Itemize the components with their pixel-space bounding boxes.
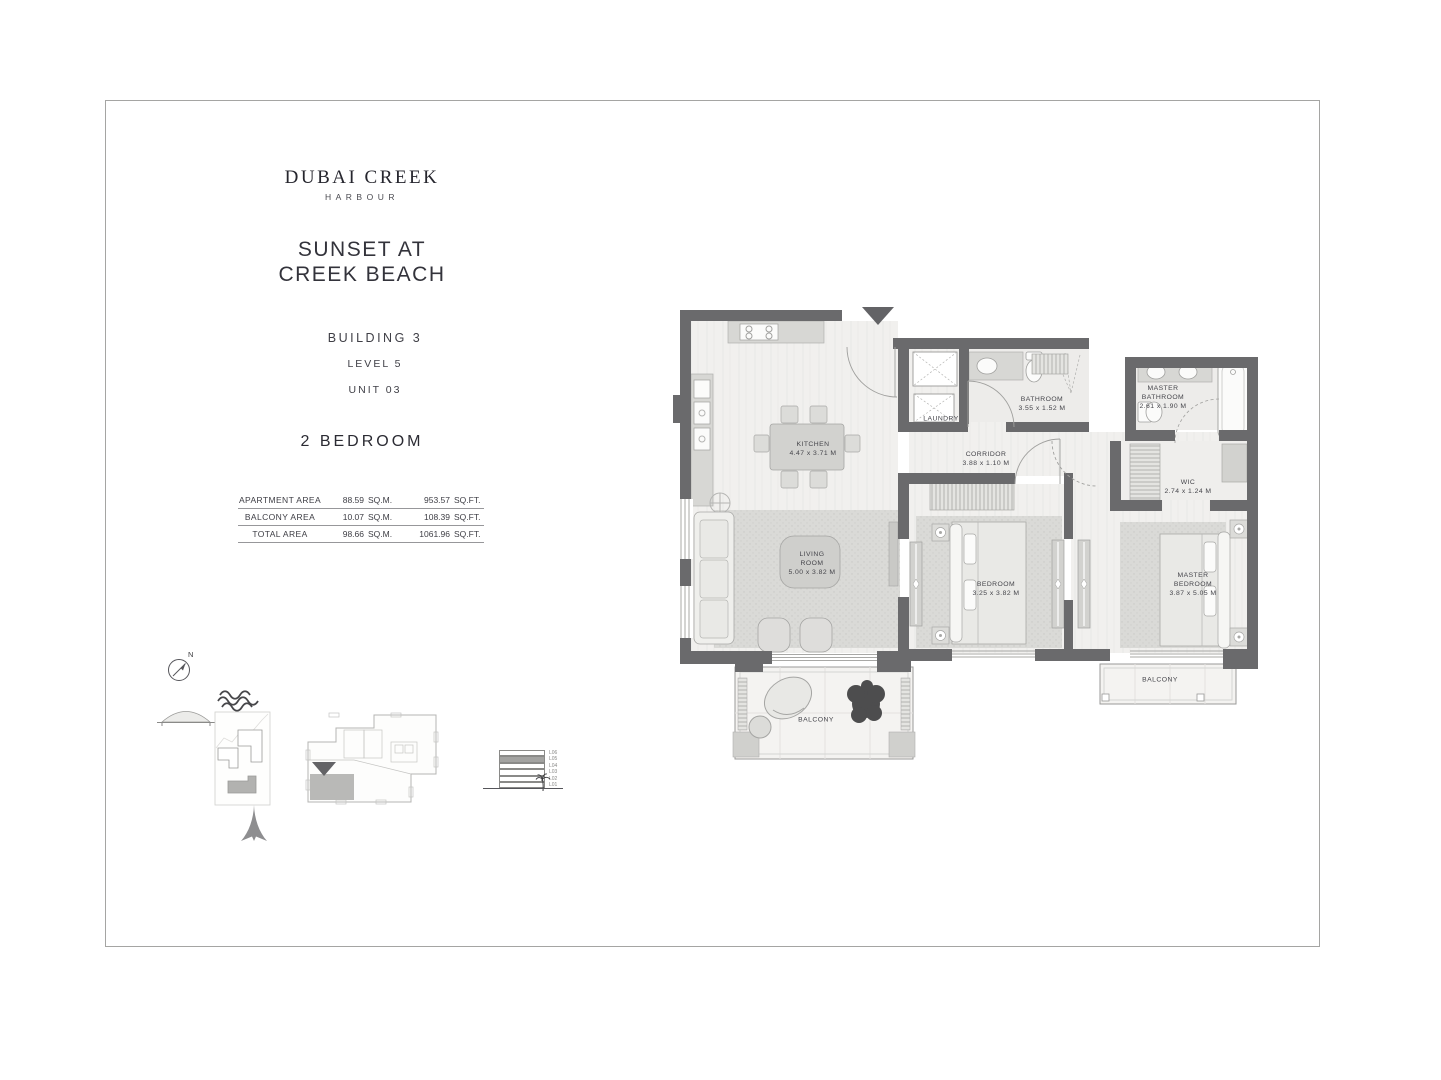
project-title: SUNSET AT CREEK BEACH bbox=[240, 237, 484, 287]
area-row-label: APARTMENT AREA bbox=[238, 495, 322, 505]
room-label-master-bedroom: MASTER BEDROOM 3.87 x 5.05 M bbox=[1169, 571, 1216, 599]
room-label-laundry: LAUNDRY bbox=[923, 414, 959, 423]
tower-icon bbox=[241, 805, 267, 841]
compass-north-label: N bbox=[188, 650, 193, 659]
building-label: BUILDING 3 bbox=[275, 331, 475, 345]
brand-title: DUBAI CREEK bbox=[240, 167, 484, 189]
ground-line bbox=[483, 788, 563, 789]
table-row: APARTMENT AREA 88.59 SQ.M. 953.57 SQ.FT. bbox=[238, 492, 484, 509]
room-label-bedroom: BEDROOM 3.25 x 3.82 M bbox=[972, 580, 1019, 598]
area-table: APARTMENT AREA 88.59 SQ.M. 953.57 SQ.FT.… bbox=[238, 492, 484, 543]
utility-closet bbox=[1032, 354, 1068, 374]
area-row-label: TOTAL AREA bbox=[238, 529, 322, 539]
unit-label: UNIT 03 bbox=[275, 384, 475, 396]
area-sqft-unit: SQ.FT. bbox=[450, 529, 484, 539]
balcony-table bbox=[749, 716, 771, 738]
area-sqm-value: 98.66 bbox=[322, 529, 364, 539]
sofa bbox=[694, 512, 734, 644]
room-label-kitchen: KITCHEN 4.47 x 3.71 M bbox=[789, 440, 836, 458]
area-sqft-value: 108.39 bbox=[398, 512, 450, 522]
bridge-icon bbox=[157, 712, 215, 727]
area-sqft-value: 1061.96 bbox=[398, 529, 450, 539]
area-sqm-unit: SQ.M. bbox=[364, 529, 398, 539]
room-label-living-room: LIVING ROOM 5.00 x 3.82 M bbox=[788, 550, 835, 578]
bathtub bbox=[1218, 360, 1248, 440]
area-row-label: BALCONY AREA bbox=[238, 512, 322, 522]
table-row: BALCONY AREA 10.07 SQ.M. 108.39 SQ.FT. bbox=[238, 509, 484, 526]
brand-logo: DUBAI CREEK HARBOUR bbox=[240, 167, 484, 202]
compass-icon: N bbox=[166, 644, 202, 686]
area-sqft-unit: SQ.FT. bbox=[450, 495, 484, 505]
plant-icon bbox=[847, 680, 885, 723]
key-plan bbox=[296, 712, 446, 817]
armchair bbox=[800, 618, 832, 652]
unit-type-label: 2 BEDROOM bbox=[262, 433, 462, 451]
table-row: TOTAL AREA 98.66 SQ.M. 1061.96 SQ.FT. bbox=[238, 526, 484, 543]
waves-icon bbox=[218, 691, 258, 711]
wardrobe bbox=[930, 482, 1014, 510]
area-sqm-value: 10.07 bbox=[322, 512, 364, 522]
level-indicator: L06 L05 L04 L03 L02 L01 bbox=[483, 742, 567, 794]
area-sqm-unit: SQ.M. bbox=[364, 495, 398, 505]
area-sqft-value: 953.57 bbox=[398, 495, 450, 505]
room-label-balcony-main: BALCONY bbox=[798, 715, 834, 724]
floor-plan bbox=[670, 296, 1270, 796]
level-label: LEVEL 5 bbox=[275, 358, 475, 370]
brand-subtitle: HARBOUR bbox=[240, 192, 484, 202]
site-plot bbox=[215, 712, 270, 805]
room-label-wic: WIC 2.74 x 1.24 M bbox=[1164, 478, 1211, 496]
tv-console bbox=[889, 522, 898, 586]
room-label-balcony-master: BALCONY bbox=[1142, 675, 1178, 684]
area-sqm-unit: SQ.M. bbox=[364, 512, 398, 522]
room-label-bathroom: BATHROOM 3.55 x 1.52 M bbox=[1018, 395, 1065, 413]
balcony-main-area bbox=[733, 667, 915, 759]
floorplan-page: { "brand": {"title": "DUBAI CREEK", "sub… bbox=[0, 0, 1441, 1080]
area-sqm-value: 88.59 bbox=[322, 495, 364, 505]
area-sqft-unit: SQ.FT. bbox=[450, 512, 484, 522]
armchair bbox=[758, 618, 790, 652]
room-label-corridor: CORRIDOR 3.88 x 1.10 M bbox=[962, 450, 1009, 468]
room-label-master-bathroom: MASTER BATHROOM 2.61 x 1.90 M bbox=[1139, 384, 1186, 412]
key-plan-unit-highlight bbox=[310, 774, 354, 800]
